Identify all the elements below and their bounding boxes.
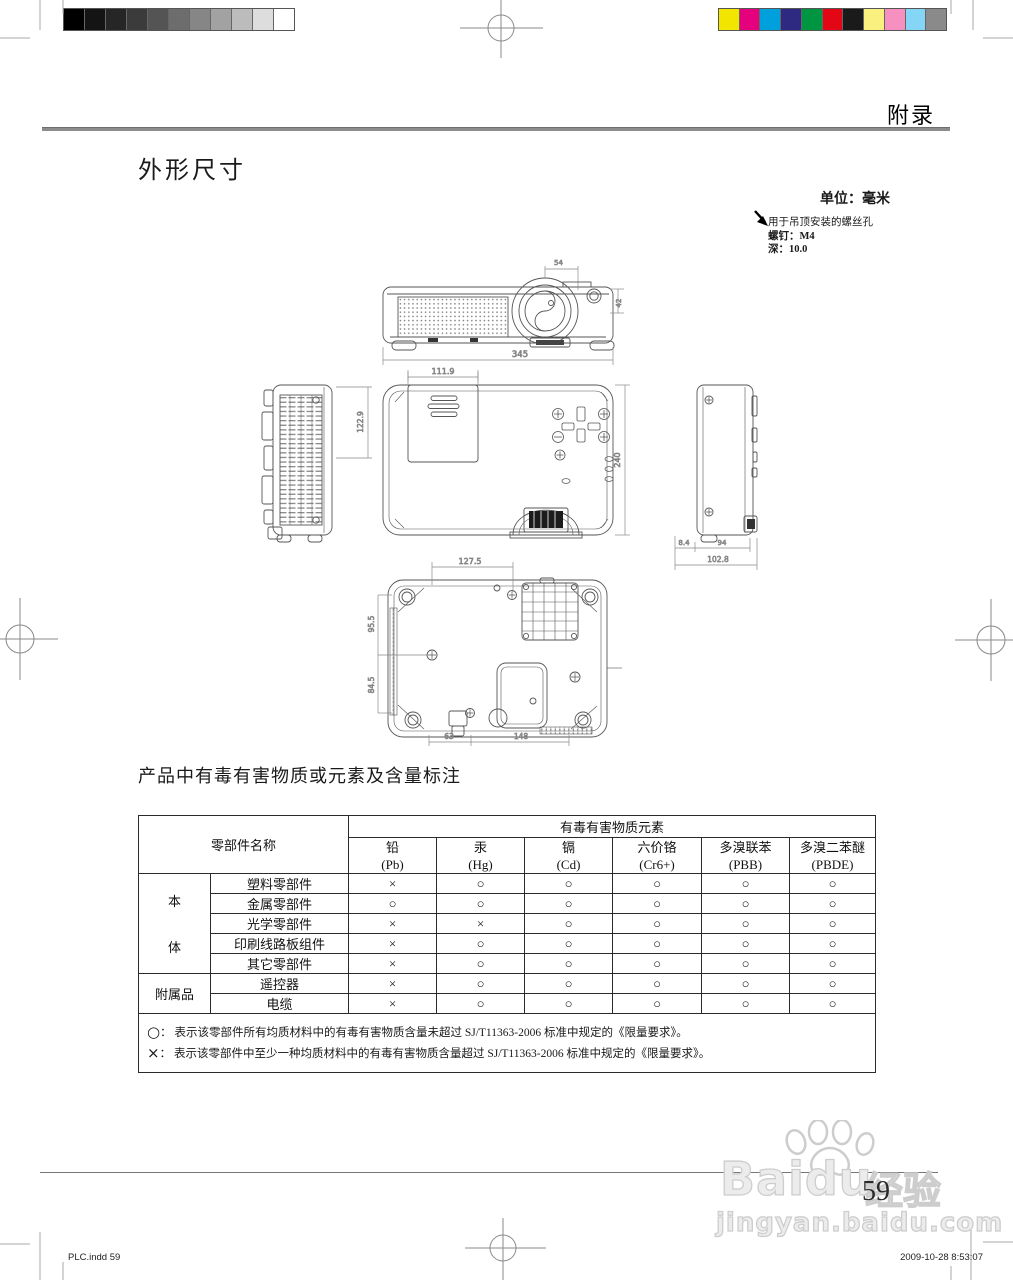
substance-value-cell: ×	[349, 974, 437, 994]
element-symbol: (Pb)	[349, 856, 436, 873]
substance-value-cell: ○	[702, 914, 790, 934]
svg-text:63: 63	[444, 732, 454, 741]
substance-value-cell: ×	[349, 874, 437, 894]
element-name: 六价铬	[613, 839, 701, 856]
ceiling-mount-arrow-icon	[755, 211, 768, 226]
substance-value-cell: ×	[349, 934, 437, 954]
substance-value-cell: ×	[437, 914, 525, 934]
substance-value-cell: ○	[702, 894, 790, 914]
substance-value-cell: ○	[437, 874, 525, 894]
part-name-cell: 电缆	[211, 994, 349, 1014]
part-name-cell: 印刷线路板组件	[211, 934, 349, 954]
substance-value-cell: ○	[613, 974, 702, 994]
column-header-elements: 有毒有害物质元素	[349, 816, 876, 838]
substance-value-cell: ○	[437, 894, 525, 914]
substance-value-cell: ○	[702, 874, 790, 894]
element-name: 多溴联苯	[702, 839, 789, 856]
svg-text:95.5: 95.5	[367, 615, 376, 632]
substance-value-cell: ×	[349, 954, 437, 974]
substance-value-cell: ○	[525, 894, 613, 914]
substance-value-cell: ○	[437, 934, 525, 954]
substance-value-cell: ○	[437, 974, 525, 994]
part-name-cell: 遥控器	[211, 974, 349, 994]
substance-value-cell: ○	[525, 974, 613, 994]
svg-text:111.9: 111.9	[432, 367, 455, 376]
substance-value-cell: ×	[349, 994, 437, 1014]
substance-value-cell: ○	[613, 914, 702, 934]
print-footer-timestamp: 2009-10-28 8:53:07	[900, 1252, 983, 1263]
svg-text:42: 42	[615, 299, 623, 308]
bottom-view-drawing	[388, 578, 622, 737]
header-rule	[42, 127, 950, 131]
table-row: 光学零部件××○○○○	[139, 914, 876, 934]
substance-value-cell: ○	[790, 974, 876, 994]
substance-value-cell: ○	[437, 994, 525, 1014]
part-name-cell: 塑料零部件	[211, 874, 349, 894]
part-name-cell: 其它零部件	[211, 954, 349, 974]
substance-value-cell: ○	[437, 954, 525, 974]
svg-text:8.4: 8.4	[678, 539, 690, 547]
footer-rule	[40, 1172, 938, 1173]
hazard-table-body: 零部件名称有毒有害物质元素铅(Pb)汞(Hg)镉(Cd)六价铬(Cr6+)多溴联…	[139, 816, 876, 1073]
svg-text:148: 148	[514, 732, 529, 741]
substance-value-cell: ○	[702, 954, 790, 974]
svg-text:54: 54	[554, 259, 563, 267]
mount-note-line3: 深：10.0	[768, 243, 873, 257]
table-row: 其它零部件×○○○○○	[139, 954, 876, 974]
table-row: 本体塑料零部件×○○○○○	[139, 874, 876, 894]
table-row: 电缆×○○○○○	[139, 994, 876, 1014]
substance-value-cell: ○	[790, 894, 876, 914]
substance-value-cell: ○	[790, 934, 876, 954]
top-view-drawing	[383, 385, 613, 538]
mount-note-line2: 螺钉：M4	[768, 230, 873, 244]
column-header-element: 六价铬(Cr6+)	[613, 838, 702, 874]
column-header-element: 多溴二苯醚(PBDE)	[790, 838, 876, 874]
column-header-element: 汞(Hg)	[437, 838, 525, 874]
group-label-cell: 本体	[139, 874, 211, 974]
column-header-element: 铅(Pb)	[349, 838, 437, 874]
substance-value-cell: ○	[613, 934, 702, 954]
group-label-cell: 附属品	[139, 974, 211, 1014]
footnote-symbol: ×	[147, 1044, 160, 1062]
column-header-element: 镉(Cd)	[525, 838, 613, 874]
element-symbol: (Hg)	[437, 856, 524, 873]
substance-value-cell: ○	[525, 954, 613, 974]
part-name-cell: 金属零部件	[211, 894, 349, 914]
page: 54 42 345 111.9	[0, 0, 1013, 1280]
table-header-row: 零部件名称有毒有害物质元素	[139, 816, 876, 838]
element-symbol: (PBDE)	[790, 856, 875, 873]
unit-note: 单位：毫米	[820, 188, 890, 208]
svg-text:122.9: 122.9	[356, 411, 365, 433]
part-name-cell: 光学零部件	[211, 914, 349, 934]
footnote-symbol: ○	[147, 1023, 160, 1041]
hazard-substance-table: 零部件名称有毒有害物质元素铅(Pb)汞(Hg)镉(Cd)六价铬(Cr6+)多溴联…	[138, 815, 876, 1073]
svg-text:345: 345	[512, 350, 528, 360]
section-title-hazard: 产品中有毒有害物质或元素及含量标注	[138, 762, 461, 788]
table-row: 金属零部件○○○○○○	[139, 894, 876, 914]
substance-value-cell: ○	[525, 874, 613, 894]
footnote-line: ○： 表示该零部件所有均质材料中的有毒有害物质含量未超过 SJ/T11363-2…	[147, 1022, 867, 1043]
left-side-view-dimensions: 122.9	[336, 387, 372, 458]
substance-value-cell: ○	[613, 894, 702, 914]
group-label-stack: 本体	[139, 878, 210, 970]
ceiling-mount-note: 用于吊顶安装的螺丝孔 螺钉：M4 深：10.0	[768, 216, 873, 257]
table-row: 印刷线路板组件×○○○○○	[139, 934, 876, 954]
substance-value-cell: ○	[525, 934, 613, 954]
table-row: 附属品遥控器×○○○○○	[139, 974, 876, 994]
substance-value-cell: ○	[702, 934, 790, 954]
right-side-view-drawing	[697, 385, 757, 542]
element-symbol: (Cd)	[525, 856, 612, 873]
element-name: 汞	[437, 839, 524, 856]
substance-value-cell: ○	[790, 954, 876, 974]
footnote-cell: ○： 表示该零部件所有均质材料中的有毒有害物质含量未超过 SJ/T11363-2…	[139, 1014, 876, 1073]
element-name: 铅	[349, 839, 436, 856]
substance-value-cell: ○	[349, 894, 437, 914]
element-symbol: (Cr6+)	[613, 856, 701, 873]
substance-value-cell: ○	[702, 994, 790, 1014]
page-number: 59	[862, 1176, 890, 1208]
left-side-view-drawing	[262, 385, 332, 542]
front-view-drawing	[383, 278, 614, 350]
svg-text:94: 94	[718, 539, 727, 547]
element-name: 镉	[525, 839, 612, 856]
substance-value-cell: ○	[525, 914, 613, 934]
group-label-char: 体	[168, 937, 181, 956]
substance-value-cell: ○	[790, 874, 876, 894]
substance-value-cell: ○	[790, 914, 876, 934]
print-footer-filename: PLC.indd 59	[68, 1252, 120, 1263]
substance-value-cell: ×	[349, 914, 437, 934]
substance-value-cell: ○	[613, 954, 702, 974]
column-header-part-name: 零部件名称	[139, 816, 349, 874]
footnote-row: ○： 表示该零部件所有均质材料中的有毒有害物质含量未超过 SJ/T11363-2…	[139, 1014, 876, 1073]
mount-note-line1: 用于吊顶安装的螺丝孔	[768, 216, 873, 230]
svg-text:240: 240	[613, 452, 622, 467]
substance-value-cell: ○	[525, 994, 613, 1014]
svg-text:102.8: 102.8	[707, 555, 729, 564]
page-header-appendix: 附录	[0, 98, 935, 130]
element-name: 多溴二苯醚	[790, 839, 875, 856]
element-symbol: (PBB)	[702, 856, 789, 873]
substance-value-cell: ○	[613, 874, 702, 894]
footnote-line: ×： 表示该零部件中至少一种均质材料中的有毒有害物质含量超过 SJ/T11363…	[147, 1043, 867, 1064]
svg-text:84.5: 84.5	[367, 676, 376, 693]
substance-value-cell: ○	[613, 994, 702, 1014]
group-label-char: 本	[168, 891, 181, 910]
substance-value-cell: ○	[790, 994, 876, 1014]
column-header-element: 多溴联苯(PBB)	[702, 838, 790, 874]
substance-value-cell: ○	[702, 974, 790, 994]
svg-text:127.5: 127.5	[459, 557, 482, 566]
section-title-dimensions: 外形尺寸	[138, 150, 246, 185]
